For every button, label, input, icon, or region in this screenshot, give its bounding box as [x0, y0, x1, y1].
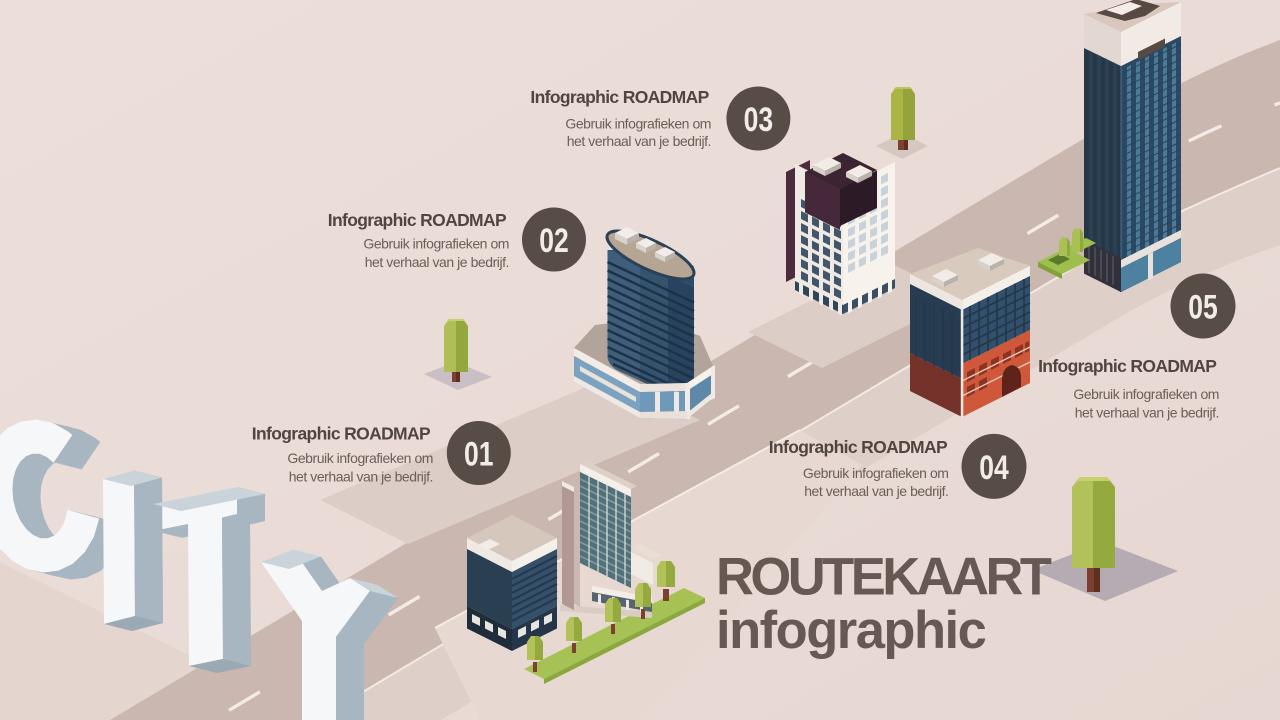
svg-text:Gebruik infografieken om: Gebruik infografieken om [287, 450, 433, 466]
svg-text:Gebruik infografieken om: Gebruik infografieken om [1073, 386, 1219, 402]
svg-text:Infographic ROADMAP: Infographic ROADMAP [252, 424, 431, 444]
svg-text:Infographic ROADMAP: Infographic ROADMAP [530, 87, 709, 107]
svg-text:04: 04 [979, 449, 1009, 487]
svg-text:het verhaal van je bedrijf.: het verhaal van je bedrijf. [365, 254, 509, 270]
svg-text:het verhaal van je bedrijf.: het verhaal van je bedrijf. [1075, 405, 1219, 421]
svg-text:infographic: infographic [716, 601, 986, 660]
svg-text:05: 05 [1188, 288, 1218, 326]
svg-text:ROUTEKAART: ROUTEKAART [716, 547, 1052, 606]
svg-text:02: 02 [539, 222, 569, 260]
svg-text:Gebruik infografieken om: Gebruik infografieken om [363, 235, 509, 251]
svg-text:Gebruik infografieken om: Gebruik infografieken om [565, 116, 711, 132]
svg-text:03: 03 [744, 101, 774, 139]
svg-text:Gebruik infografieken om: Gebruik infografieken om [803, 465, 949, 481]
svg-text:Infographic ROADMAP: Infographic ROADMAP [1038, 356, 1217, 376]
svg-text:het verhaal van je bedrijf.: het verhaal van je bedrijf. [804, 483, 948, 499]
svg-text:het verhaal van je bedrijf.: het verhaal van je bedrijf. [567, 133, 711, 149]
svg-text:Infographic ROADMAP: Infographic ROADMAP [769, 437, 948, 457]
svg-text:01: 01 [464, 435, 494, 473]
svg-text:het verhaal van je bedrijf.: het verhaal van je bedrijf. [289, 469, 433, 485]
svg-text:Infographic ROADMAP: Infographic ROADMAP [328, 210, 507, 230]
